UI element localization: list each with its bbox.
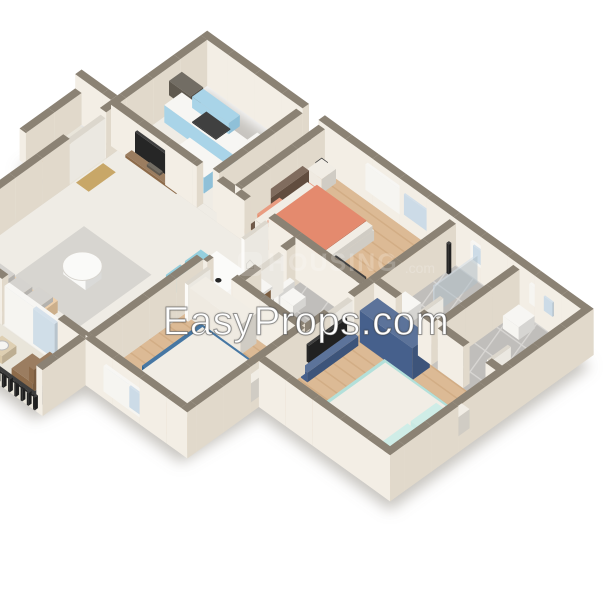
housing-watermark-text: HOUSING [268, 249, 399, 278]
housing-watermark: ⌂ HOUSING .com [238, 249, 435, 278]
balcony-railing-front-post [33, 394, 38, 410]
housing-logo-icon: ⌂ [238, 252, 262, 276]
balcony-table-top [0, 341, 8, 350]
coffee-table-top [63, 252, 103, 281]
shower-a [447, 241, 452, 275]
kitchen-living-wall [192, 158, 203, 207]
floorplan-stage: ⌂ HOUSING .com EasyProps.com [0, 0, 612, 612]
balcony-railing-front-post [8, 376, 13, 392]
entry-side-wall [20, 127, 28, 165]
housing-watermark-tld: .com [405, 260, 435, 278]
easyprops-watermark: EasyProps.com [163, 300, 450, 345]
table-centerpiece [215, 278, 221, 283]
balcony-railing-front-post [27, 390, 32, 406]
blue-right-exterior-wall [181, 401, 197, 459]
right-exterior-wall [384, 440, 405, 501]
balcony-right-wall [36, 354, 58, 416]
